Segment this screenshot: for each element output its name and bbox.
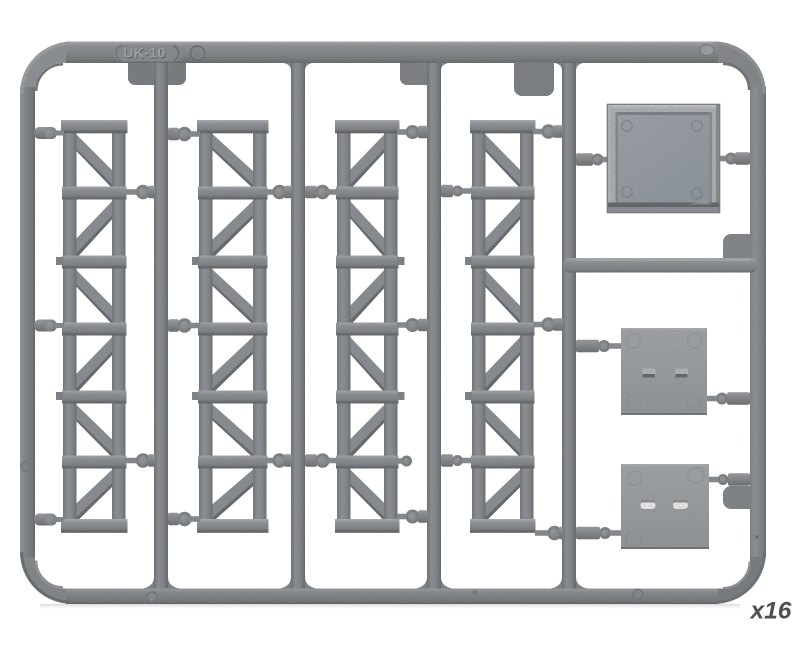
svg-text:x16: x16 — [749, 598, 792, 625]
svg-text:UK-10: UK-10 — [123, 45, 165, 61]
